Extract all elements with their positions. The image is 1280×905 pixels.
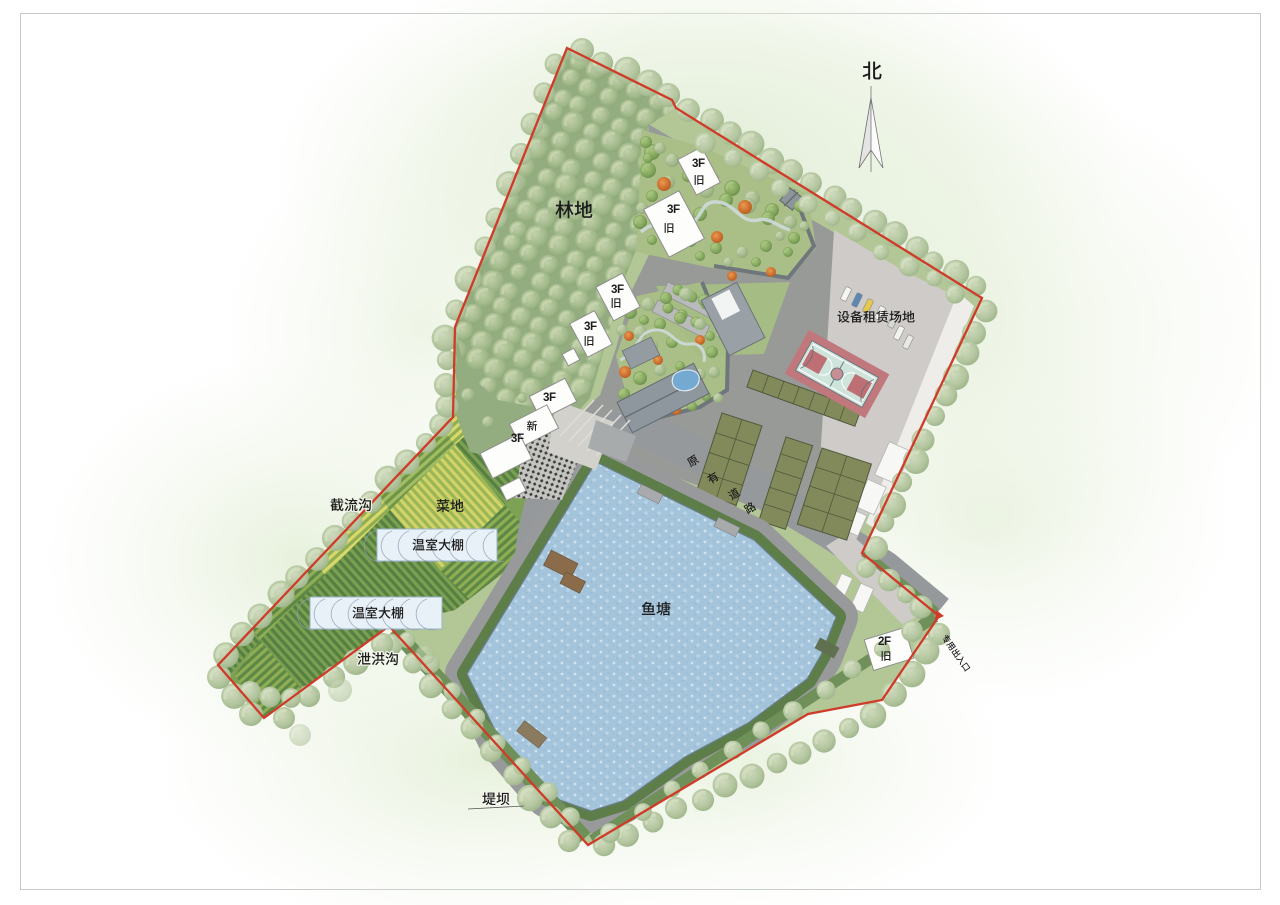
svg-text:F: F xyxy=(884,635,891,648)
svg-text:F: F xyxy=(590,320,597,333)
svg-text:F: F xyxy=(617,283,624,296)
svg-text:F: F xyxy=(673,203,680,216)
svg-text:F: F xyxy=(698,157,705,170)
svg-text:F: F xyxy=(549,391,556,404)
svg-text:F: F xyxy=(517,432,524,445)
